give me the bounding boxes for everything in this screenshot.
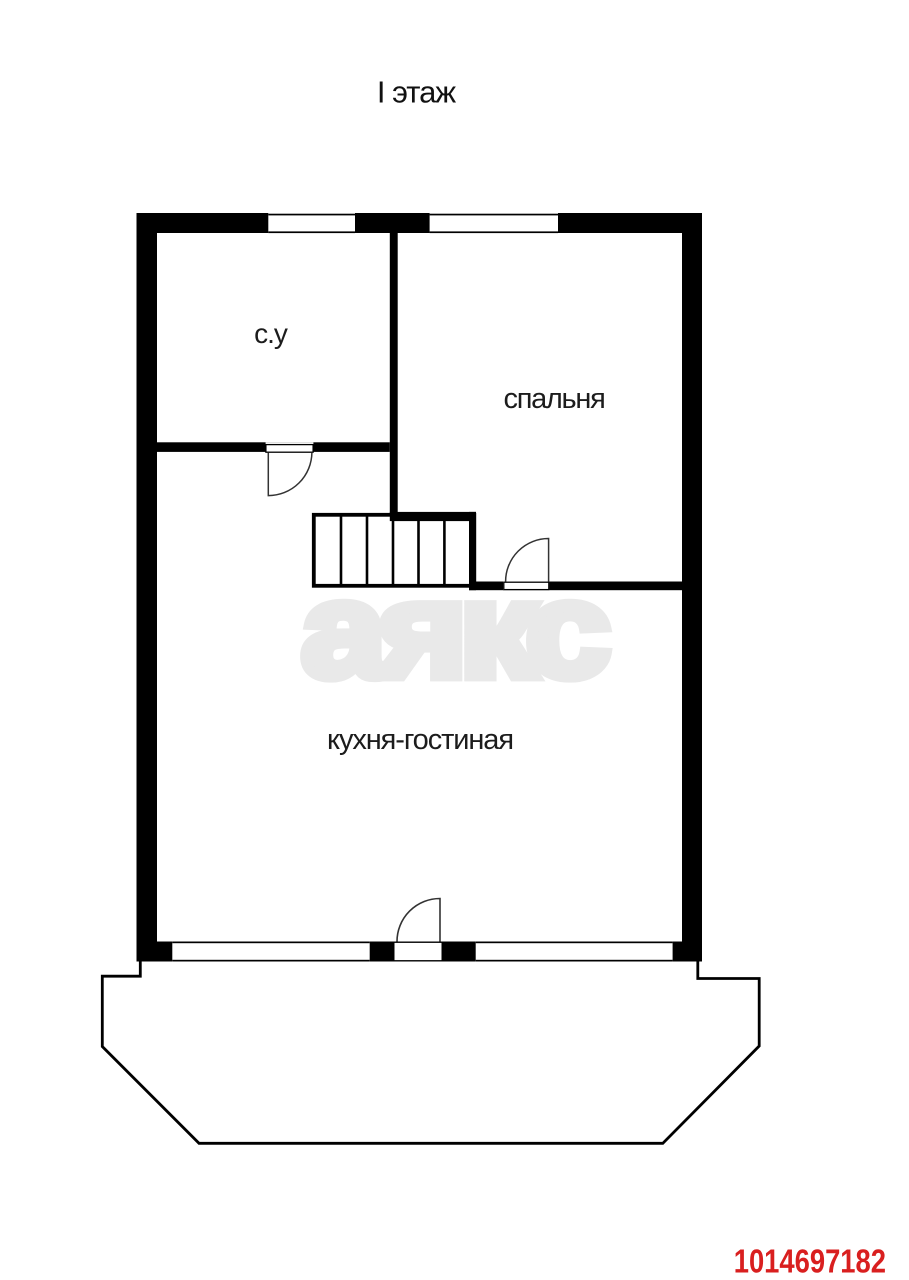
svg-text:с.у: с.у <box>254 318 288 349</box>
svg-text:аякс: аякс <box>301 554 606 706</box>
svg-text:1014697182: 1014697182 <box>734 1244 886 1280</box>
svg-text:спальня: спальня <box>504 383 605 415</box>
svg-text:кухня-гостиная: кухня-гостиная <box>327 724 513 756</box>
svg-text:I этаж: I этаж <box>377 75 456 110</box>
